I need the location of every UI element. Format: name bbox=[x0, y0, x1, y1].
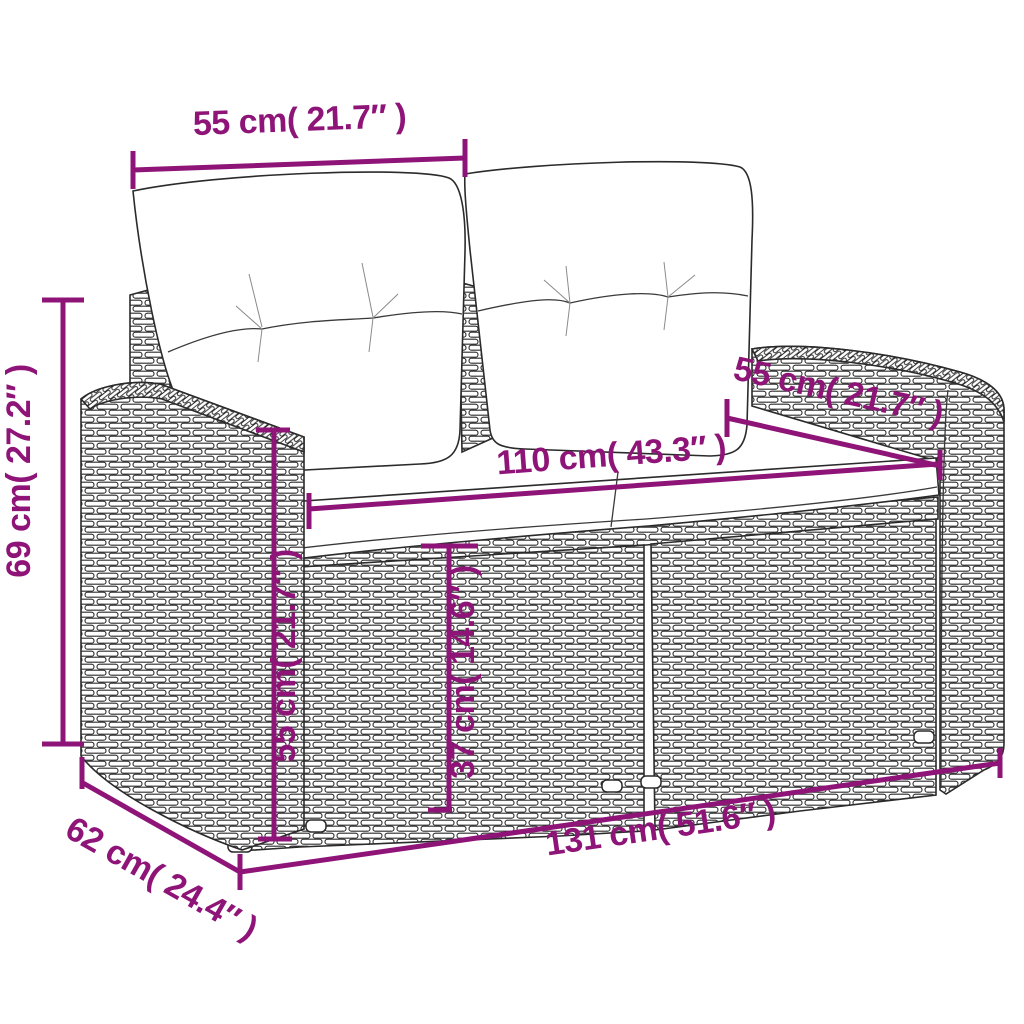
sofa-dimension-diagram: 55 cm( 21.7″ ) 69 cm( 27.2″ ) 55 cm( 21.… bbox=[0, 0, 1024, 1024]
dim-label-armrest-height: 55 cm( 21.7″ ) bbox=[265, 549, 303, 762]
foot bbox=[641, 776, 661, 788]
dim-overall-height: 69 cm( 27.2″ ) bbox=[0, 300, 84, 744]
back-cushion-right bbox=[465, 162, 753, 456]
dim-label-seat-height: 37 cm( 14.6″ ) bbox=[444, 565, 482, 778]
foot bbox=[306, 820, 326, 832]
dim-label-overall-height: 69 cm( 27.2″ ) bbox=[0, 364, 38, 577]
dim-label-back-cushion-width: 55 cm( 21.7″ ) bbox=[192, 97, 407, 143]
foot bbox=[914, 731, 934, 743]
product-dimension-image: 55 cm( 21.7″ ) 69 cm( 27.2″ ) 55 cm( 21.… bbox=[0, 0, 1024, 1024]
foot bbox=[602, 780, 622, 792]
seat-base-right-panel bbox=[651, 519, 936, 830]
sofa-line-art bbox=[81, 162, 1004, 852]
